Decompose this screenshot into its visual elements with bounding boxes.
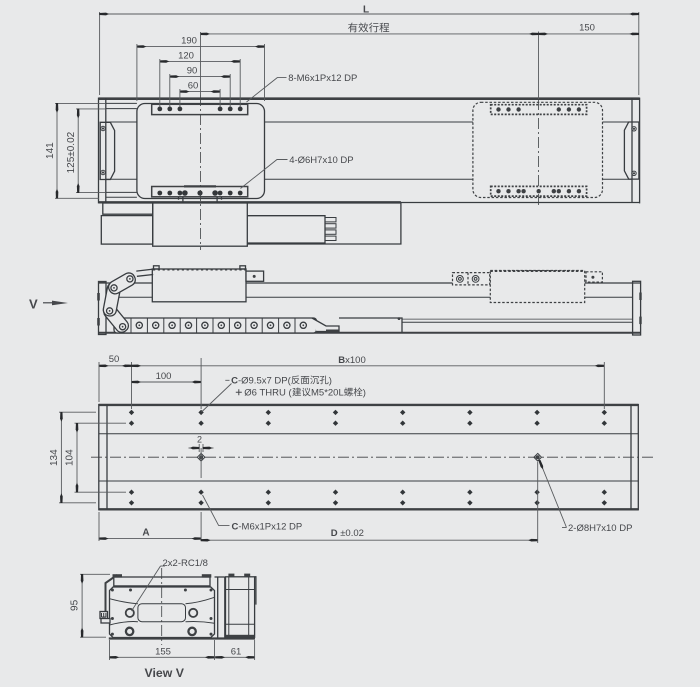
svg-text:View V: View V (145, 666, 185, 680)
svg-text:): ) (329, 375, 332, 386)
svg-text:95: 95 (70, 599, 81, 611)
svg-text:155: 155 (155, 646, 171, 657)
svg-text:4-Ø6H7x10 DP: 4-Ø6H7x10 DP (289, 155, 353, 166)
svg-text:2x2-RC1/8: 2x2-RC1/8 (163, 558, 208, 569)
svg-text:V: V (29, 297, 38, 312)
svg-text:8-M6x1Px12 DP: 8-M6x1Px12 DP (288, 73, 357, 84)
svg-text:150: 150 (579, 23, 595, 34)
svg-text:61: 61 (231, 646, 242, 657)
svg-text:C-M6x1Px12 DP: C-M6x1Px12 DP (232, 522, 303, 533)
svg-text:L: L (363, 5, 369, 16)
svg-text:104: 104 (65, 449, 76, 466)
svg-text:190: 190 (181, 36, 197, 47)
svg-text:2: 2 (197, 435, 202, 445)
svg-text:125±0.02: 125±0.02 (66, 131, 77, 173)
svg-text:141: 141 (45, 142, 56, 159)
svg-text:D ±0.02: D ±0.02 (331, 528, 364, 539)
svg-text:60: 60 (188, 81, 199, 92)
svg-text:): ) (363, 388, 366, 399)
svg-text:2-Ø8H7x10 DP: 2-Ø8H7x10 DP (568, 523, 632, 534)
svg-text:120: 120 (178, 50, 194, 61)
svg-text:C-Ø9.5x7 DP(: C-Ø9.5x7 DP( (231, 375, 292, 386)
svg-text:Ø6 THRU (: Ø6 THRU ( (244, 388, 292, 399)
svg-text:100: 100 (156, 371, 172, 382)
svg-text:90: 90 (187, 66, 198, 77)
svg-text:Bx100: Bx100 (338, 355, 365, 366)
svg-text:A: A (142, 528, 149, 539)
svg-text:50: 50 (109, 354, 120, 365)
svg-text:134: 134 (49, 449, 60, 466)
svg-text:M5*20L: M5*20L (311, 388, 344, 399)
